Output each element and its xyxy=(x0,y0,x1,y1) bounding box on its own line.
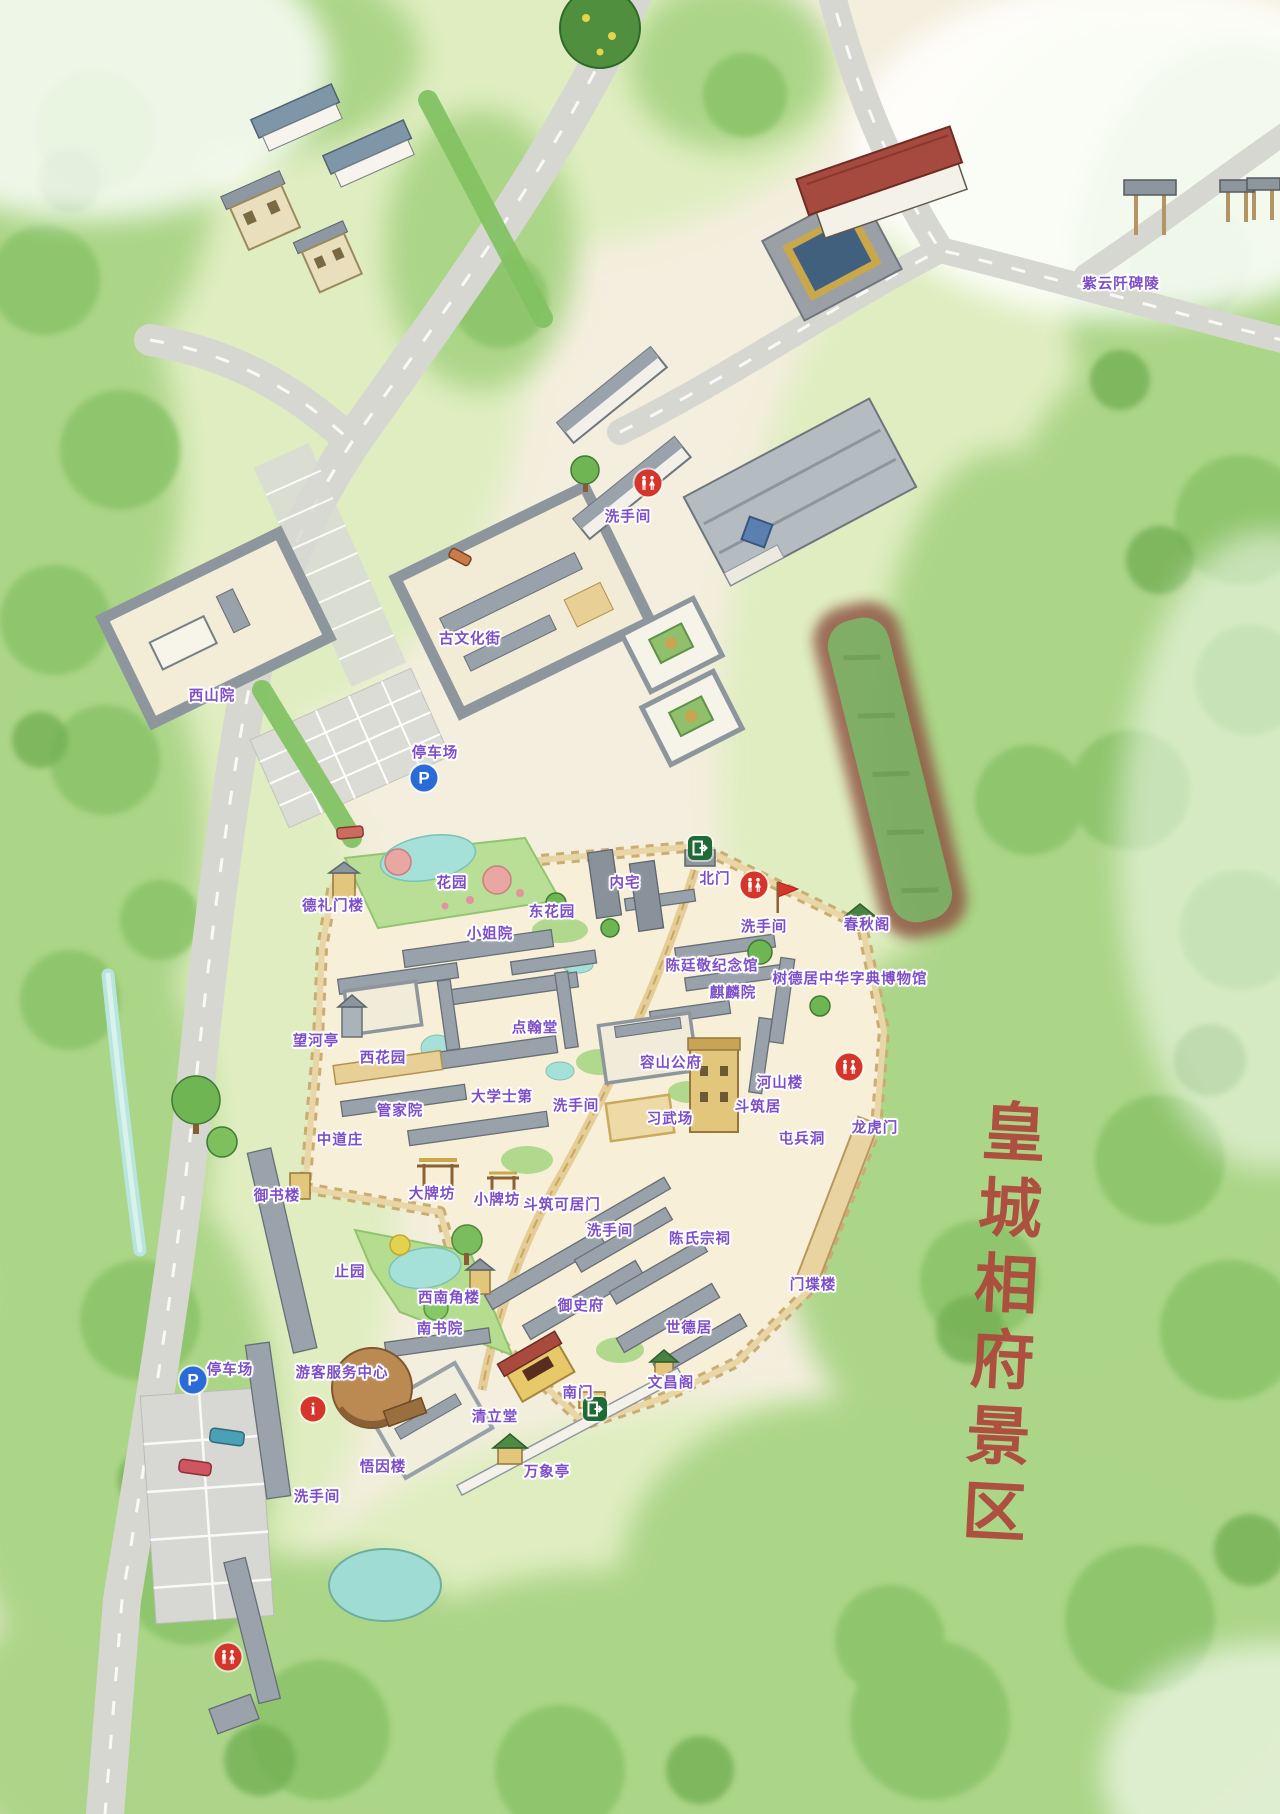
map-label: 御书楼 xyxy=(254,1185,301,1206)
map-label: 点翰堂 xyxy=(512,1017,559,1038)
map-label: 清立堂 xyxy=(472,1406,519,1427)
map-label: 内宅 xyxy=(610,872,641,893)
map-label: 游客服务中心 xyxy=(296,1362,389,1383)
toilet-icon xyxy=(836,1054,863,1081)
info-icon: i xyxy=(301,1397,326,1422)
map-label: 小姐院 xyxy=(467,923,514,944)
map-label: 树德居中华字典博物馆 xyxy=(773,968,928,989)
map-label: 洗手间 xyxy=(741,916,788,937)
map-label: 龙虎门 xyxy=(852,1117,899,1138)
map-label: 麒麟院 xyxy=(710,982,757,1003)
toilet-icon xyxy=(741,872,768,899)
marker-glyph: P xyxy=(418,768,429,788)
parking-icon: P xyxy=(180,1367,207,1394)
map-canvas: 皇城相府景区 紫云阡碑陵洗手间古文化街西山院停车场花园德礼门楼内宅北门东花园小姐… xyxy=(0,0,1280,1814)
map-label: 悟因楼 xyxy=(360,1456,407,1477)
map-label: 斗筑居 xyxy=(735,1096,782,1117)
map-label: 门堞楼 xyxy=(790,1274,837,1295)
marker-glyph: P xyxy=(187,1370,198,1390)
map-label: 小牌坊 xyxy=(474,1189,521,1210)
marker-glyph: i xyxy=(311,1399,316,1419)
map-label: 陈廷敬纪念馆 xyxy=(666,955,759,976)
map-label: 洗手间 xyxy=(605,506,652,527)
map-label: 御史府 xyxy=(558,1295,605,1316)
map-label: 古文化街 xyxy=(439,628,501,649)
map-label: 洗手间 xyxy=(587,1220,634,1241)
flag-icon xyxy=(771,879,803,915)
map-label: 世德居 xyxy=(666,1317,713,1338)
map-label: 河山楼 xyxy=(757,1072,804,1093)
map-label: 洗手间 xyxy=(553,1095,600,1116)
toilet-icon xyxy=(635,470,662,497)
map-label: 西山院 xyxy=(189,685,236,706)
map-label: 西花园 xyxy=(360,1047,407,1068)
map-label: 洗手间 xyxy=(294,1486,341,1507)
map-label: 德礼门楼 xyxy=(302,895,364,916)
map-label: 文昌阁 xyxy=(648,1372,695,1393)
gate-icon xyxy=(688,836,712,860)
parking-icon: P xyxy=(411,765,438,792)
map-label: 万象亭 xyxy=(524,1461,571,1482)
map-label: 停车场 xyxy=(207,1359,254,1380)
map-label: 北门 xyxy=(700,868,731,889)
map-label: 陈氏宗祠 xyxy=(669,1228,731,1249)
map-label: 南门 xyxy=(563,1382,594,1403)
map-label: 春秋阁 xyxy=(844,914,891,935)
map-label: 容山公府 xyxy=(640,1052,702,1073)
map-label: 停车场 xyxy=(412,742,459,763)
toilet-icon xyxy=(215,1644,242,1671)
map-label: 管家院 xyxy=(377,1100,424,1121)
map-label: 南书院 xyxy=(417,1318,464,1339)
map-label: 西南角楼 xyxy=(418,1287,480,1308)
map-label: 大学士第 xyxy=(471,1086,533,1107)
map-label: 望河亭 xyxy=(293,1030,340,1051)
map-label: 中道庄 xyxy=(317,1129,364,1150)
map-label: 大牌坊 xyxy=(409,1183,456,1204)
map-label: 屯兵洞 xyxy=(779,1128,826,1149)
map-label: 斗筑可居门 xyxy=(523,1194,601,1215)
map-label: 止园 xyxy=(335,1261,366,1282)
map-label: 东花园 xyxy=(529,901,576,922)
map-label: 花园 xyxy=(437,872,468,893)
map-label: 紫云阡碑陵 xyxy=(1082,273,1160,294)
map-label: 习武场 xyxy=(647,1108,694,1129)
